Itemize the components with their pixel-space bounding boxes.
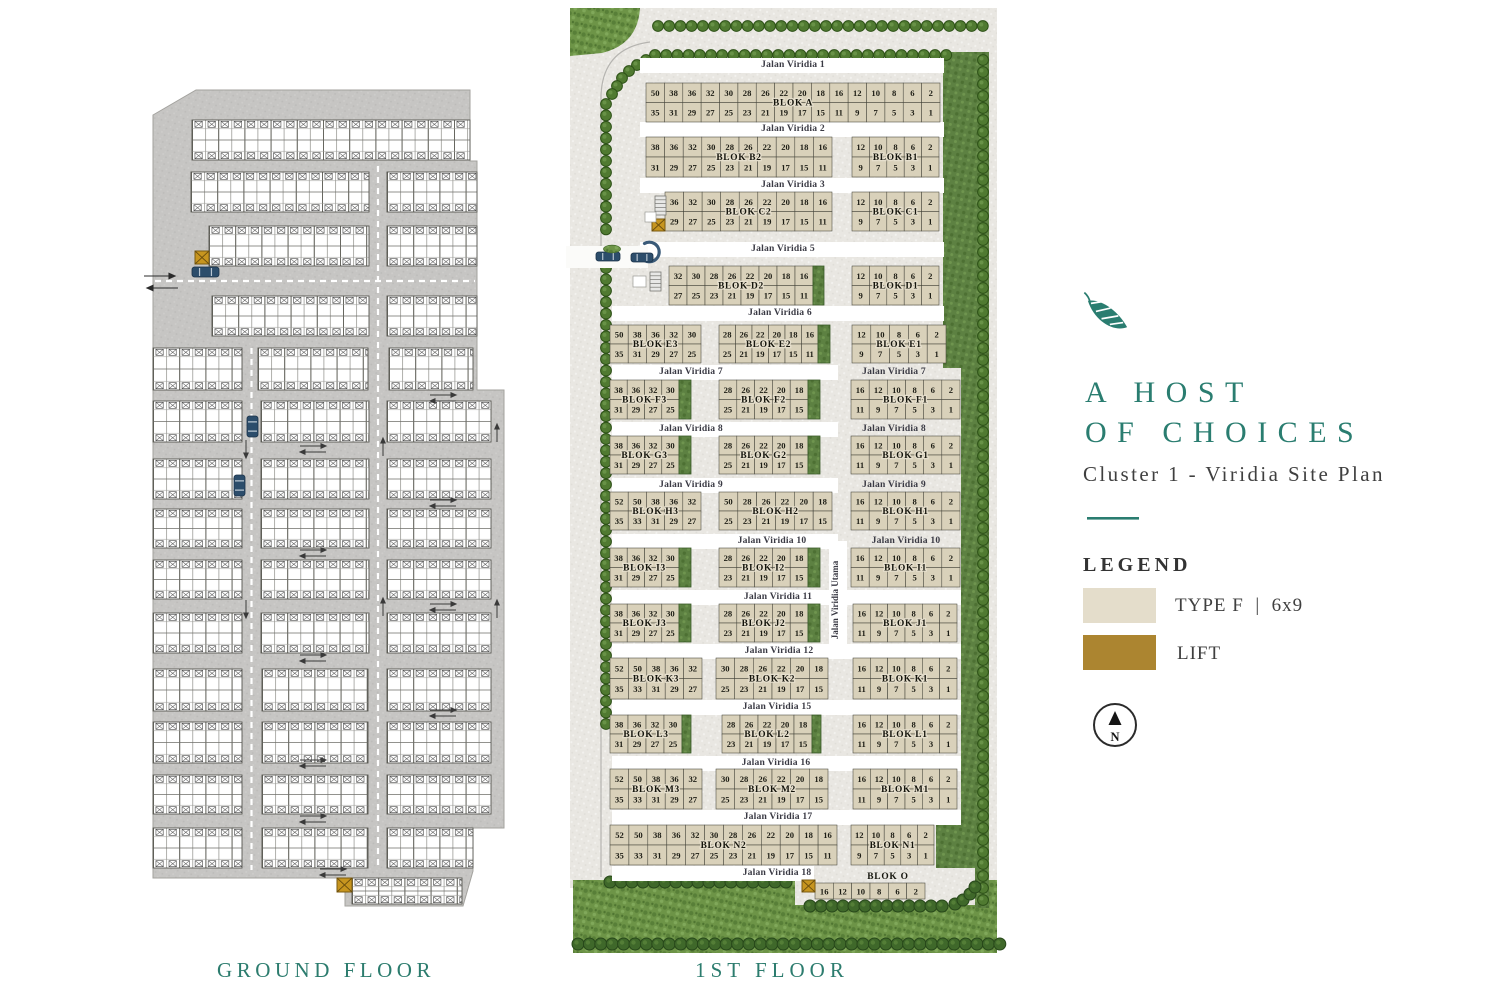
svg-text:32: 32 (649, 441, 658, 451)
svg-text:28: 28 (724, 385, 733, 395)
svg-text:50: 50 (724, 497, 733, 507)
svg-text:BLOK H3: BLOK H3 (632, 507, 678, 517)
svg-text:1ST FLOOR: 1ST FLOOR (695, 958, 849, 982)
svg-text:28: 28 (725, 142, 734, 152)
svg-text:25: 25 (724, 108, 733, 118)
svg-text:32: 32 (706, 88, 715, 98)
svg-text:38: 38 (614, 553, 623, 563)
svg-text:15: 15 (782, 291, 791, 301)
svg-text:15: 15 (795, 405, 804, 415)
svg-text:5: 5 (893, 291, 897, 301)
svg-text:25: 25 (721, 684, 730, 694)
svg-text:22: 22 (759, 441, 768, 451)
svg-text:9: 9 (877, 684, 881, 694)
svg-text:1: 1 (928, 291, 932, 301)
svg-text:6: 6 (911, 142, 916, 152)
svg-text:29: 29 (670, 217, 679, 227)
svg-text:Jalan Viridia 11: Jalan Viridia 11 (744, 591, 812, 602)
svg-text:22: 22 (759, 553, 768, 563)
svg-text:31: 31 (652, 794, 661, 804)
svg-text:27: 27 (691, 850, 700, 860)
svg-text:16: 16 (818, 142, 827, 152)
svg-text:36: 36 (633, 720, 642, 730)
svg-text:29: 29 (651, 349, 660, 359)
svg-text:35: 35 (651, 108, 660, 118)
svg-text:9: 9 (859, 291, 863, 301)
svg-text:18: 18 (795, 385, 804, 395)
svg-text:18: 18 (800, 142, 809, 152)
svg-text:23: 23 (725, 162, 734, 172)
svg-text:BLOK E3: BLOK E3 (633, 340, 678, 350)
svg-text:17: 17 (773, 349, 782, 359)
svg-text:9: 9 (859, 217, 863, 227)
svg-text:Jalan Viridia 16: Jalan Viridia 16 (742, 757, 811, 768)
svg-text:BLOK F1: BLOK F1 (883, 396, 928, 406)
svg-text:5: 5 (912, 794, 916, 804)
svg-text:7: 7 (878, 349, 883, 359)
svg-text:35: 35 (615, 516, 624, 526)
svg-text:15: 15 (814, 794, 823, 804)
svg-text:35: 35 (615, 684, 624, 694)
svg-text:27: 27 (649, 628, 658, 638)
svg-text:52: 52 (615, 663, 624, 673)
svg-text:3: 3 (929, 794, 933, 804)
svg-text:15: 15 (818, 516, 827, 526)
svg-text:32: 32 (649, 385, 658, 395)
svg-text:21: 21 (744, 162, 753, 172)
svg-text:GROUND FLOOR: GROUND FLOOR (217, 958, 435, 982)
svg-text:3: 3 (931, 573, 935, 583)
svg-text:19: 19 (781, 516, 790, 526)
svg-text:26: 26 (741, 553, 750, 563)
svg-text:31: 31 (651, 162, 660, 172)
svg-text:25: 25 (724, 516, 733, 526)
svg-text:50: 50 (634, 830, 643, 840)
svg-text:28: 28 (710, 271, 719, 281)
svg-text:5: 5 (892, 108, 896, 118)
svg-text:30: 30 (721, 774, 730, 784)
svg-text:12: 12 (875, 774, 884, 784)
svg-text:BLOK J1: BLOK J1 (883, 619, 927, 629)
svg-text:3: 3 (931, 460, 935, 470)
svg-text:9: 9 (876, 460, 880, 470)
svg-text:16: 16 (800, 271, 809, 281)
svg-text:18: 18 (816, 88, 825, 98)
svg-text:6: 6 (931, 385, 936, 395)
svg-text:22: 22 (767, 830, 776, 840)
svg-text:25: 25 (666, 573, 675, 583)
svg-text:31: 31 (614, 405, 623, 415)
svg-text:19: 19 (763, 739, 772, 749)
svg-text:17: 17 (781, 162, 790, 172)
svg-text:38: 38 (651, 497, 660, 507)
svg-text:38: 38 (633, 330, 642, 340)
svg-text:10: 10 (892, 663, 901, 673)
svg-text:6: 6 (911, 197, 916, 207)
svg-text:Jalan Viridia 10: Jalan Viridia 10 (738, 535, 807, 546)
svg-text:28: 28 (724, 609, 733, 619)
svg-text:17: 17 (764, 291, 773, 301)
svg-text:6: 6 (910, 88, 915, 98)
svg-text:29: 29 (670, 684, 679, 694)
svg-text:12: 12 (874, 497, 883, 507)
svg-text:16: 16 (856, 497, 865, 507)
svg-text:12: 12 (875, 663, 884, 673)
svg-text:30: 30 (666, 609, 675, 619)
svg-text:32: 32 (649, 609, 658, 619)
svg-text:30: 30 (692, 271, 701, 281)
svg-text:15: 15 (800, 162, 809, 172)
svg-text:3: 3 (911, 291, 915, 301)
svg-text:25: 25 (669, 739, 678, 749)
svg-text:1: 1 (946, 739, 950, 749)
svg-text:28: 28 (724, 553, 733, 563)
svg-text:21: 21 (728, 291, 737, 301)
svg-text:8: 8 (897, 330, 902, 340)
svg-text:Jalan Viridia 12: Jalan Viridia 12 (745, 645, 814, 656)
svg-text:23: 23 (743, 108, 752, 118)
svg-text:12: 12 (855, 830, 864, 840)
svg-text:1: 1 (928, 162, 932, 172)
svg-text:2: 2 (946, 774, 950, 784)
svg-text:10: 10 (876, 330, 885, 340)
svg-text:29: 29 (632, 628, 641, 638)
svg-text:35: 35 (615, 794, 624, 804)
svg-text:20: 20 (798, 88, 807, 98)
svg-text:30: 30 (669, 720, 678, 730)
svg-text:Jalan Viridia 8: Jalan Viridia 8 (659, 423, 723, 434)
svg-text:21: 21 (758, 684, 767, 694)
svg-text:29: 29 (633, 739, 642, 749)
svg-text:5: 5 (890, 850, 894, 860)
svg-text:3: 3 (929, 628, 933, 638)
svg-text:9: 9 (877, 739, 881, 749)
svg-text:2: 2 (949, 441, 953, 451)
svg-text:26: 26 (758, 774, 767, 784)
svg-text:16: 16 (818, 197, 827, 207)
svg-text:26: 26 (748, 830, 757, 840)
svg-text:27: 27 (688, 516, 697, 526)
svg-text:16: 16 (856, 441, 865, 451)
svg-text:20: 20 (796, 774, 805, 784)
svg-text:7: 7 (894, 739, 899, 749)
svg-text:5: 5 (912, 628, 916, 638)
svg-text:25: 25 (666, 405, 675, 415)
svg-text:36: 36 (632, 385, 641, 395)
svg-text:29: 29 (670, 162, 679, 172)
svg-text:12: 12 (856, 197, 865, 207)
svg-text:16: 16 (856, 385, 865, 395)
svg-text:8: 8 (912, 553, 917, 563)
svg-text:31: 31 (614, 460, 623, 470)
svg-text:31: 31 (652, 684, 661, 694)
svg-text:36: 36 (632, 553, 641, 563)
svg-text:17: 17 (798, 108, 807, 118)
svg-text:50: 50 (633, 774, 642, 784)
svg-text:8: 8 (912, 720, 917, 730)
svg-text:32: 32 (688, 142, 697, 152)
svg-text:15: 15 (795, 628, 804, 638)
svg-text:32: 32 (674, 271, 683, 281)
svg-text:3: 3 (911, 217, 915, 227)
svg-text:36: 36 (688, 88, 697, 98)
svg-text:21: 21 (761, 108, 770, 118)
svg-text:52: 52 (615, 774, 624, 784)
svg-text:18: 18 (799, 720, 808, 730)
svg-text:Jalan Viridia Utama: Jalan Viridia Utama (830, 560, 840, 639)
svg-text:18: 18 (795, 553, 804, 563)
svg-text:38: 38 (614, 441, 623, 451)
svg-text:26: 26 (741, 441, 750, 451)
svg-text:16: 16 (820, 887, 829, 897)
svg-text:BLOK N1: BLOK N1 (870, 841, 916, 851)
svg-text:2: 2 (946, 663, 950, 673)
svg-text:32: 32 (689, 663, 698, 673)
svg-text:11: 11 (856, 516, 864, 526)
svg-text:9: 9 (857, 850, 861, 860)
svg-text:20: 20 (773, 330, 782, 340)
svg-text:27: 27 (689, 217, 698, 227)
svg-text:19: 19 (780, 108, 789, 118)
svg-text:36: 36 (669, 497, 678, 507)
svg-text:BLOK E2: BLOK E2 (746, 340, 791, 350)
svg-text:28: 28 (723, 330, 732, 340)
svg-text:BLOK I1: BLOK I1 (884, 564, 927, 574)
svg-text:18: 18 (800, 197, 809, 207)
svg-text:10: 10 (892, 553, 901, 563)
svg-text:21: 21 (748, 850, 757, 860)
svg-text:38: 38 (653, 830, 662, 840)
svg-text:BLOK L2: BLOK L2 (744, 730, 789, 740)
svg-text:8: 8 (893, 142, 898, 152)
svg-text:11: 11 (858, 628, 866, 638)
svg-text:17: 17 (777, 573, 786, 583)
svg-text:Jalan Viridia 18: Jalan Viridia 18 (743, 867, 812, 878)
svg-text:23: 23 (729, 850, 738, 860)
svg-text:BLOK F3: BLOK F3 (622, 396, 667, 406)
svg-text:25: 25 (721, 794, 730, 804)
svg-text:11: 11 (823, 850, 831, 860)
svg-text:28: 28 (726, 197, 735, 207)
svg-text:17: 17 (777, 460, 786, 470)
svg-text:Jalan Viridia 10: Jalan Viridia 10 (872, 535, 941, 546)
svg-text:Jalan Viridia 15: Jalan Viridia 15 (743, 701, 812, 712)
svg-text:3: 3 (911, 162, 915, 172)
svg-text:BLOK E1: BLOK E1 (876, 340, 921, 350)
svg-text:28: 28 (743, 88, 752, 98)
svg-text:2: 2 (949, 553, 953, 563)
svg-text:6: 6 (916, 330, 921, 340)
svg-text:21: 21 (741, 628, 750, 638)
svg-text:7: 7 (876, 217, 881, 227)
svg-text:20: 20 (785, 830, 794, 840)
svg-text:21: 21 (741, 405, 750, 415)
svg-text:23: 23 (743, 516, 752, 526)
svg-text:2: 2 (949, 497, 953, 507)
svg-text:12: 12 (856, 271, 865, 281)
svg-text:8: 8 (912, 663, 917, 673)
svg-text:18: 18 (795, 441, 804, 451)
svg-text:12: 12 (857, 330, 866, 340)
svg-text:BLOK B1: BLOK B1 (873, 153, 918, 163)
svg-text:3: 3 (931, 405, 935, 415)
svg-text:12: 12 (875, 609, 884, 619)
svg-text:17: 17 (800, 516, 809, 526)
svg-text:38: 38 (614, 385, 623, 395)
svg-text:25: 25 (707, 162, 716, 172)
svg-text:6: 6 (895, 887, 900, 897)
svg-text:33: 33 (633, 794, 642, 804)
svg-text:5: 5 (897, 349, 901, 359)
svg-text:19: 19 (777, 684, 786, 694)
svg-text:26: 26 (740, 330, 749, 340)
svg-text:2: 2 (946, 609, 950, 619)
svg-text:22: 22 (777, 663, 786, 673)
svg-text:29: 29 (688, 108, 697, 118)
svg-text:26: 26 (744, 142, 753, 152)
svg-text:50: 50 (651, 88, 660, 98)
svg-text:27: 27 (706, 108, 715, 118)
svg-text:Jalan Viridia 2: Jalan Viridia 2 (761, 123, 825, 134)
svg-text:BLOK J2: BLOK J2 (742, 619, 786, 629)
svg-text:1: 1 (946, 628, 950, 638)
svg-text:8: 8 (893, 271, 898, 281)
svg-text:28: 28 (740, 774, 749, 784)
svg-text:22: 22 (781, 497, 790, 507)
svg-text:BLOK D1: BLOK D1 (873, 282, 919, 292)
svg-text:21: 21 (741, 573, 750, 583)
svg-text:26: 26 (744, 197, 753, 207)
svg-text:Jalan Viridia 8: Jalan Viridia 8 (862, 423, 926, 434)
svg-text:32: 32 (689, 197, 698, 207)
svg-text:27: 27 (649, 405, 658, 415)
svg-text:20: 20 (781, 142, 790, 152)
svg-text:17: 17 (777, 628, 786, 638)
svg-text:11: 11 (858, 684, 866, 694)
svg-text:BLOK K3: BLOK K3 (633, 675, 679, 685)
svg-text:BLOK G1: BLOK G1 (882, 451, 928, 461)
svg-text:11: 11 (819, 162, 827, 172)
svg-text:1: 1 (929, 108, 933, 118)
svg-text:31: 31 (669, 108, 678, 118)
svg-text:21: 21 (741, 460, 750, 470)
svg-text:30: 30 (666, 553, 675, 563)
svg-text:25: 25 (724, 405, 733, 415)
svg-text:Jalan Viridia 3: Jalan Viridia 3 (761, 179, 825, 190)
svg-text:3: 3 (907, 850, 911, 860)
svg-text:23: 23 (740, 684, 749, 694)
svg-text:20: 20 (781, 197, 790, 207)
svg-text:11: 11 (858, 794, 866, 804)
svg-text:33: 33 (633, 684, 642, 694)
svg-text:26: 26 (728, 271, 737, 281)
svg-text:3: 3 (916, 349, 920, 359)
svg-text:27: 27 (689, 794, 698, 804)
svg-text:10: 10 (892, 441, 901, 451)
svg-text:9: 9 (876, 573, 880, 583)
svg-text:28: 28 (743, 497, 752, 507)
svg-text:2: 2 (928, 271, 932, 281)
svg-text:BLOK I2: BLOK I2 (742, 564, 785, 574)
svg-text:TYPE F | 6x9: TYPE F | 6x9 (1175, 595, 1303, 616)
svg-text:BLOK I3: BLOK I3 (623, 564, 666, 574)
svg-text:31: 31 (651, 516, 660, 526)
svg-text:7: 7 (874, 850, 879, 860)
svg-text:23: 23 (724, 573, 733, 583)
svg-text:6: 6 (929, 720, 934, 730)
svg-text:50: 50 (615, 330, 624, 340)
svg-text:19: 19 (756, 349, 765, 359)
svg-text:Jalan Viridia 9: Jalan Viridia 9 (862, 479, 926, 490)
svg-text:2: 2 (949, 385, 953, 395)
svg-text:1: 1 (946, 794, 950, 804)
svg-text:BLOK N2: BLOK N2 (701, 841, 747, 851)
svg-text:3: 3 (929, 684, 933, 694)
svg-text:36: 36 (672, 830, 681, 840)
svg-text:30: 30 (710, 830, 719, 840)
svg-text:25: 25 (723, 349, 732, 359)
svg-text:19: 19 (759, 405, 768, 415)
svg-text:10: 10 (874, 197, 883, 207)
svg-text:15: 15 (789, 349, 798, 359)
svg-text:7: 7 (894, 516, 899, 526)
svg-text:19: 19 (763, 217, 772, 227)
svg-text:36: 36 (632, 441, 641, 451)
svg-text:7: 7 (876, 291, 881, 301)
svg-text:23: 23 (740, 794, 749, 804)
svg-text:18: 18 (818, 497, 827, 507)
svg-text:5: 5 (912, 516, 916, 526)
svg-text:32: 32 (691, 830, 700, 840)
svg-text:16: 16 (823, 830, 832, 840)
svg-text:6: 6 (931, 497, 936, 507)
svg-text:19: 19 (777, 794, 786, 804)
svg-text:21: 21 (744, 217, 753, 227)
svg-text:20: 20 (777, 441, 786, 451)
svg-text:7: 7 (894, 460, 899, 470)
svg-text:10: 10 (892, 720, 901, 730)
svg-text:BLOK F2: BLOK F2 (741, 396, 786, 406)
svg-text:6: 6 (929, 609, 934, 619)
svg-text:36: 36 (632, 609, 641, 619)
svg-text:9: 9 (876, 516, 880, 526)
svg-text:3: 3 (929, 739, 933, 749)
svg-text:N: N (1110, 730, 1119, 744)
svg-text:10: 10 (874, 271, 883, 281)
svg-text:22: 22 (763, 197, 772, 207)
svg-text:6: 6 (929, 774, 934, 784)
svg-text:9: 9 (877, 794, 881, 804)
svg-text:7: 7 (874, 108, 879, 118)
svg-text:22: 22 (763, 720, 772, 730)
svg-text:29: 29 (632, 405, 641, 415)
svg-text:27: 27 (649, 460, 658, 470)
svg-text:10: 10 (892, 497, 901, 507)
svg-text:Jalan Viridia 6: Jalan Viridia 6 (748, 307, 812, 318)
svg-text:Jalan Viridia 7: Jalan Viridia 7 (659, 366, 723, 377)
svg-text:36: 36 (651, 330, 660, 340)
svg-text:12: 12 (853, 88, 862, 98)
svg-text:12: 12 (875, 720, 884, 730)
svg-text:27: 27 (651, 739, 660, 749)
svg-text:52: 52 (615, 830, 624, 840)
svg-text:1: 1 (949, 460, 953, 470)
svg-text:22: 22 (777, 774, 786, 784)
svg-text:11: 11 (856, 460, 864, 470)
svg-text:BLOK M3: BLOK M3 (632, 785, 680, 795)
svg-text:5: 5 (912, 684, 916, 694)
svg-text:7: 7 (894, 405, 899, 415)
